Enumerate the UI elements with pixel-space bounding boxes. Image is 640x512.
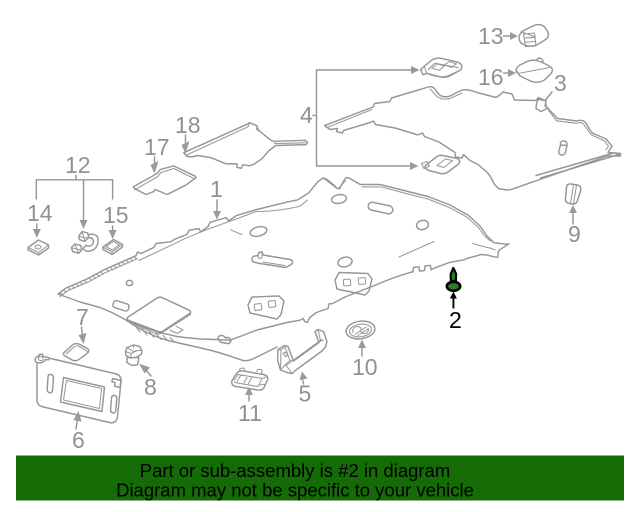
svg-text:2: 2 (449, 307, 462, 333)
svg-text:16: 16 (478, 64, 504, 90)
svg-text:14: 14 (27, 200, 53, 226)
svg-text:18: 18 (175, 112, 201, 138)
svg-text:17: 17 (144, 134, 170, 160)
svg-text:12: 12 (65, 152, 91, 178)
svg-text:4: 4 (300, 102, 313, 128)
svg-text:11: 11 (238, 400, 262, 426)
svg-text:9: 9 (568, 221, 581, 247)
svg-text:Diagram may not be specific to: Diagram may not be specific to your vehi… (116, 480, 474, 501)
svg-text:8: 8 (144, 374, 157, 400)
svg-text:6: 6 (72, 427, 85, 453)
svg-text:15: 15 (103, 202, 129, 228)
svg-text:10: 10 (352, 354, 378, 380)
svg-text:13: 13 (478, 23, 504, 49)
svg-text:7: 7 (76, 304, 89, 330)
svg-text:1: 1 (210, 176, 223, 202)
svg-text:Part or sub-assembly is #2 in: Part or sub-assembly is #2 in diagram (140, 460, 451, 481)
svg-text:3: 3 (554, 70, 567, 96)
svg-text:5: 5 (299, 381, 312, 407)
